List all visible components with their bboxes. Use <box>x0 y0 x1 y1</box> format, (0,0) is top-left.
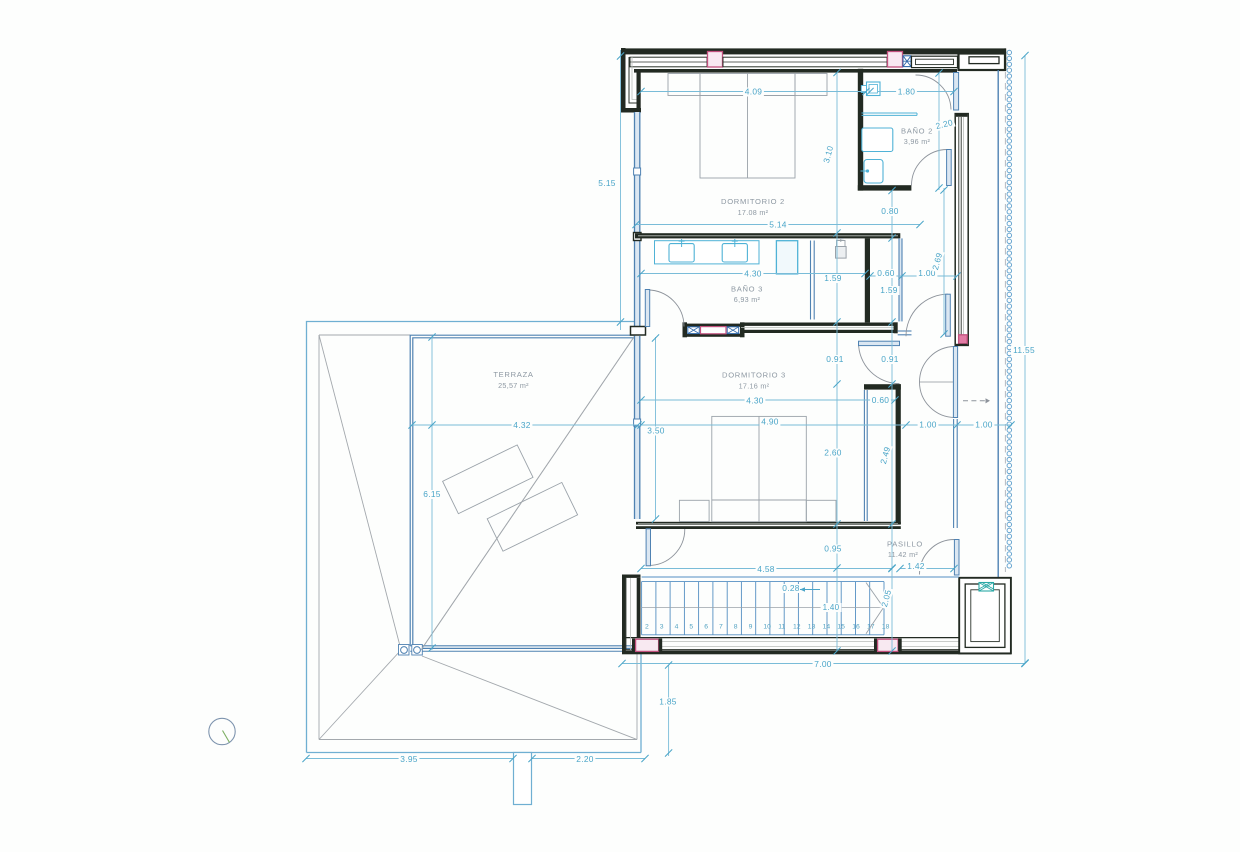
svg-text:16: 16 <box>852 624 860 631</box>
svg-text:8: 8 <box>734 624 738 631</box>
svg-text:11.42 m²: 11.42 m² <box>888 550 919 559</box>
svg-text:1.42: 1.42 <box>907 561 925 571</box>
svg-text:0.91: 0.91 <box>826 354 844 364</box>
svg-text:17.16 m²: 17.16 m² <box>739 382 770 391</box>
svg-text:DORMITORIO 2: DORMITORIO 2 <box>721 197 785 206</box>
svg-text:6: 6 <box>704 624 708 631</box>
svg-text:0.80: 0.80 <box>881 206 899 216</box>
svg-text:18: 18 <box>882 624 890 631</box>
svg-text:15: 15 <box>837 624 845 631</box>
svg-text:14: 14 <box>823 624 831 631</box>
svg-text:1.59: 1.59 <box>880 285 898 295</box>
svg-text:11.55: 11.55 <box>1013 345 1035 355</box>
svg-text:6.15: 6.15 <box>423 489 441 499</box>
svg-text:7: 7 <box>719 624 723 631</box>
svg-text:0.91: 0.91 <box>881 354 899 364</box>
svg-text:4.90: 4.90 <box>761 417 779 427</box>
svg-text:1.80: 1.80 <box>898 87 916 97</box>
svg-text:4.32: 4.32 <box>513 420 531 430</box>
svg-text:4.30: 4.30 <box>744 269 762 279</box>
svg-text:3.95: 3.95 <box>400 754 418 764</box>
svg-text:1.40: 1.40 <box>823 603 840 612</box>
svg-text:10: 10 <box>763 624 771 631</box>
svg-text:2.20: 2.20 <box>576 754 594 764</box>
svg-text:1.00: 1.00 <box>919 420 937 430</box>
svg-text:BAÑO 2: BAÑO 2 <box>901 127 933 136</box>
svg-text:TERRAZA: TERRAZA <box>493 370 534 379</box>
svg-text:3: 3 <box>660 624 664 631</box>
svg-text:5.15: 5.15 <box>598 178 616 188</box>
svg-text:2: 2 <box>645 624 649 631</box>
svg-text:4.58: 4.58 <box>757 564 775 574</box>
svg-text:4: 4 <box>675 624 679 631</box>
svg-text:12: 12 <box>793 624 801 631</box>
svg-text:0.60: 0.60 <box>872 395 890 405</box>
svg-text:3.50: 3.50 <box>647 426 665 436</box>
svg-text:5.14: 5.14 <box>769 220 787 230</box>
svg-text:11: 11 <box>778 624 785 631</box>
svg-text:2.60: 2.60 <box>824 448 842 458</box>
svg-text:4.09: 4.09 <box>745 87 763 97</box>
svg-text:7.00: 7.00 <box>814 659 832 669</box>
svg-text:1.85: 1.85 <box>659 697 677 707</box>
svg-text:25,57 m²: 25,57 m² <box>498 381 529 390</box>
svg-text:1.00: 1.00 <box>975 420 993 430</box>
svg-text:0.28: 0.28 <box>782 583 800 593</box>
svg-text:3,96 m²: 3,96 m² <box>904 137 931 146</box>
svg-text:0.60: 0.60 <box>877 268 895 278</box>
svg-text:DORMITORIO 3: DORMITORIO 3 <box>722 371 786 380</box>
svg-text:BAÑO 3: BAÑO 3 <box>731 285 763 294</box>
svg-text:9: 9 <box>749 624 753 631</box>
svg-text:PASILLO: PASILLO <box>887 540 923 549</box>
svg-text:0.95: 0.95 <box>824 544 842 554</box>
svg-text:4.30: 4.30 <box>746 396 764 406</box>
svg-text:13: 13 <box>808 624 816 631</box>
svg-text:6,93 m²: 6,93 m² <box>734 295 761 304</box>
svg-text:5: 5 <box>689 624 693 631</box>
svg-text:1.59: 1.59 <box>824 273 842 283</box>
svg-text:17.08 m²: 17.08 m² <box>738 208 769 217</box>
